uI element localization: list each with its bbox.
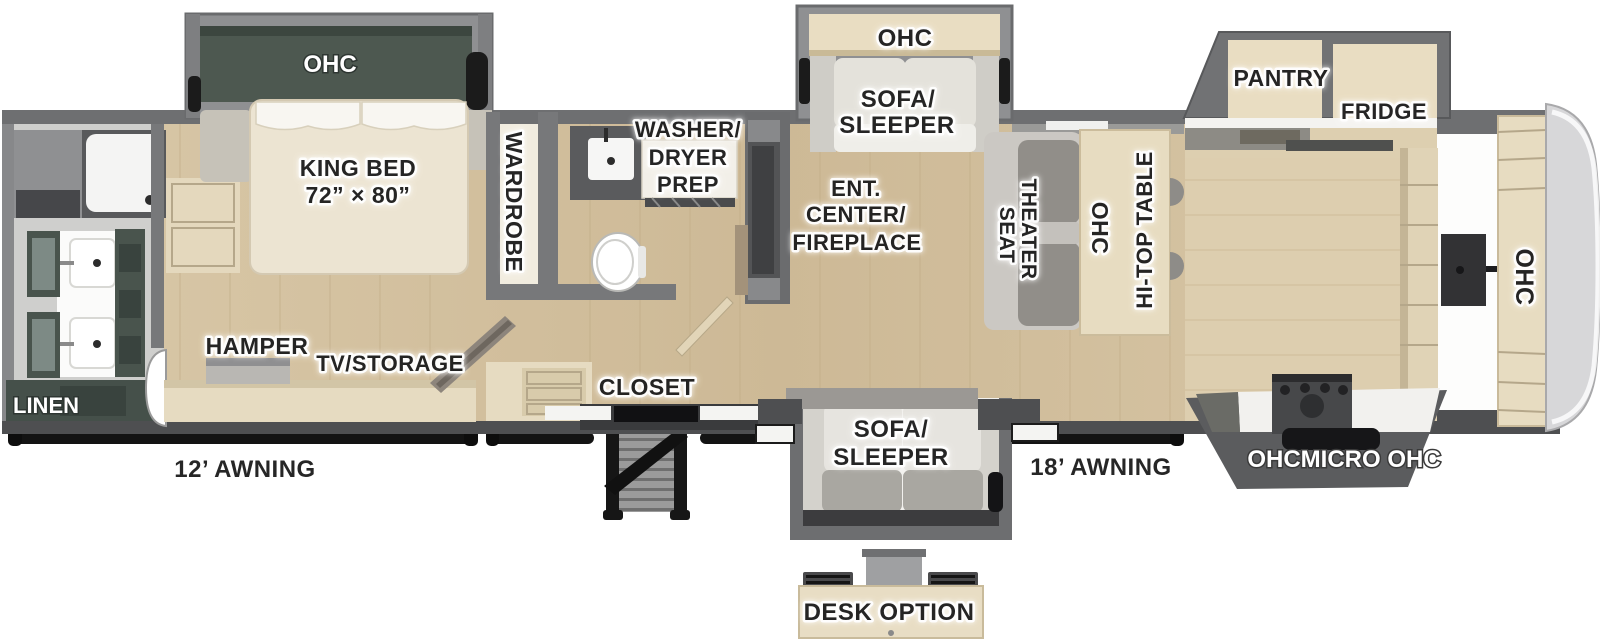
svg-text:CLOSET: CLOSET bbox=[599, 374, 695, 400]
svg-text:KING BED: KING BED bbox=[300, 155, 416, 181]
svg-text:SLEEPER: SLEEPER bbox=[833, 444, 949, 471]
svg-text:OHC: OHC bbox=[303, 51, 356, 78]
svg-text:TV/STORAGE: TV/STORAGE bbox=[316, 351, 464, 376]
svg-text:SLEEPER: SLEEPER bbox=[839, 112, 955, 139]
svg-text:WASHER/: WASHER/ bbox=[635, 117, 741, 142]
svg-text:PREP: PREP bbox=[657, 172, 719, 197]
svg-text:THEATER: THEATER bbox=[1017, 178, 1040, 279]
svg-text:OHC: OHC bbox=[878, 25, 933, 52]
svg-text:PANTRY: PANTRY bbox=[1234, 65, 1329, 91]
svg-text:HAMPER: HAMPER bbox=[206, 333, 309, 359]
svg-text:FIREPLACE: FIREPLACE bbox=[792, 230, 921, 255]
svg-text:LINEN: LINEN bbox=[13, 393, 79, 418]
svg-text:SEAT: SEAT bbox=[995, 207, 1018, 263]
svg-text:FRIDGE: FRIDGE bbox=[1341, 99, 1427, 124]
svg-text:CENTER/: CENTER/ bbox=[806, 202, 906, 227]
svg-text:SOFA/: SOFA/ bbox=[861, 86, 936, 113]
svg-text:18’ AWNING: 18’ AWNING bbox=[1030, 454, 1171, 481]
svg-text:OHC: OHC bbox=[1510, 248, 1538, 305]
svg-text:DRYER: DRYER bbox=[649, 145, 728, 170]
svg-text:ENT.: ENT. bbox=[831, 176, 881, 201]
svg-text:OHCMICRO OHC: OHCMICRO OHC bbox=[1247, 446, 1440, 473]
svg-text:SOFA/: SOFA/ bbox=[854, 416, 929, 443]
svg-text:72” × 80”: 72” × 80” bbox=[306, 182, 411, 208]
svg-text:DESK OPTION: DESK OPTION bbox=[804, 599, 975, 626]
svg-text:OHC: OHC bbox=[1087, 202, 1113, 255]
svg-text:HI-TOP TABLE: HI-TOP TABLE bbox=[1132, 151, 1157, 309]
svg-text:WARDROBE: WARDROBE bbox=[501, 132, 527, 273]
svg-text:12’ AWNING: 12’ AWNING bbox=[174, 456, 315, 483]
